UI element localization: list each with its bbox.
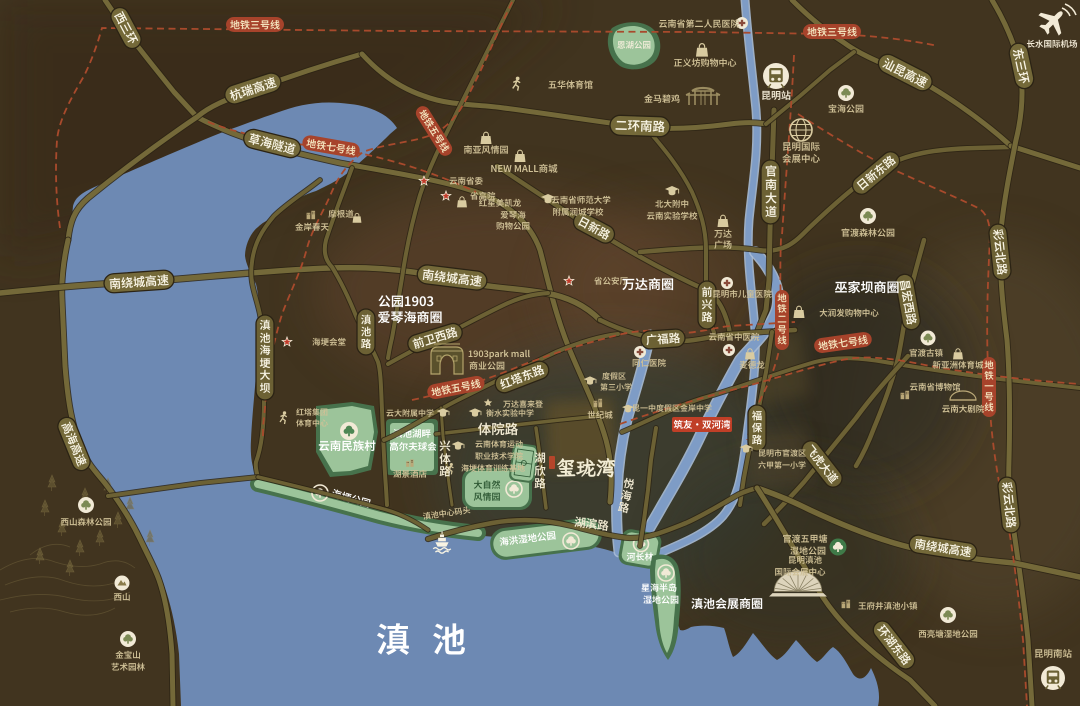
svg-text:第三小学: 第三小学 bbox=[600, 382, 632, 393]
svg-text:北大附中: 北大附中 bbox=[655, 198, 689, 210]
svg-text:二环南路: 二环南路 bbox=[615, 115, 666, 136]
svg-text:会展中心: 会展中心 bbox=[782, 151, 821, 165]
svg-text:长水国际机场: 长水国际机场 bbox=[1026, 38, 1078, 50]
svg-text:风情园: 风情园 bbox=[473, 490, 500, 503]
svg-text:滇池会展商圈: 滇池会展商圈 bbox=[691, 595, 763, 612]
svg-text:广福路: 广福路 bbox=[645, 330, 681, 348]
svg-text:玺珑湾: 玺珑湾 bbox=[556, 454, 616, 481]
svg-text:云南实验学校: 云南实验学校 bbox=[646, 210, 698, 222]
svg-text:云南省师范大学: 云南省师范大学 bbox=[551, 194, 611, 206]
svg-text:职业技术学院: 职业技术学院 bbox=[475, 451, 523, 462]
svg-text:海埂会堂: 海埂会堂 bbox=[312, 336, 347, 348]
svg-text:云大附属中学: 云大附属中学 bbox=[386, 408, 434, 419]
svg-text:体育中心: 体育中心 bbox=[296, 418, 328, 429]
svg-text:云南省委: 云南省委 bbox=[449, 175, 484, 187]
svg-text:西山森林公园: 西山森林公园 bbox=[60, 516, 111, 528]
svg-text:湿地公园: 湿地公园 bbox=[643, 593, 679, 606]
svg-text:国际会展中心: 国际会展中心 bbox=[774, 566, 826, 578]
svg-text:云南民族村: 云南民族村 bbox=[318, 438, 376, 454]
svg-text:昆一中度假区金岸中学: 昆一中度假区金岸中学 bbox=[632, 403, 712, 414]
svg-text:高尔夫球会: 高尔夫球会 bbox=[389, 439, 437, 453]
svg-text:西亮塘湿地公园: 西亮塘湿地公园 bbox=[918, 628, 978, 640]
svg-text:云南省中医院: 云南省中医院 bbox=[708, 331, 760, 343]
svg-text:线: 线 bbox=[984, 399, 994, 413]
svg-text:爱琴海商圈: 爱琴海商圈 bbox=[377, 307, 442, 326]
svg-text:筑友·双河湾: 筑友·双河湾 bbox=[673, 417, 731, 431]
svg-text:地铁三号线: 地铁三号线 bbox=[807, 24, 857, 39]
svg-text:金宝山: 金宝山 bbox=[115, 649, 141, 661]
svg-text:南亚风情园: 南亚风情园 bbox=[463, 143, 508, 156]
svg-text:线: 线 bbox=[777, 332, 787, 346]
svg-text:昆明市官渡区: 昆明市官渡区 bbox=[758, 448, 806, 459]
svg-text:昆明南站: 昆明南站 bbox=[1034, 646, 1073, 660]
svg-text:路: 路 bbox=[752, 432, 763, 447]
svg-text:六甲第一小学: 六甲第一小学 bbox=[758, 460, 806, 471]
svg-text:正义坊购物中心: 正义坊购物中心 bbox=[673, 56, 736, 69]
svg-text:海埂体育训练基地: 海埂体育训练基地 bbox=[461, 463, 525, 474]
svg-text:河长林: 河长林 bbox=[626, 550, 653, 563]
svg-text:路: 路 bbox=[534, 476, 546, 492]
svg-text:麦德龙: 麦德龙 bbox=[739, 359, 765, 371]
svg-text:世纪城: 世纪城 bbox=[587, 409, 613, 421]
svg-text:商业公园: 商业公园 bbox=[469, 359, 505, 372]
svg-text:云南体育运动: 云南体育运动 bbox=[475, 439, 523, 450]
svg-text:昆明站: 昆明站 bbox=[761, 87, 791, 102]
svg-text:巫家坝商圈: 巫家坝商圈 bbox=[834, 277, 899, 296]
svg-text:新亚洲体育城: 新亚洲体育城 bbox=[932, 359, 984, 371]
svg-text:路: 路 bbox=[439, 464, 451, 480]
svg-text:红星美凯龙: 红星美凯龙 bbox=[479, 197, 522, 209]
svg-text:王府井滇池小镇: 王府井滇池小镇 bbox=[858, 600, 918, 612]
svg-text:地铁三号线: 地铁三号线 bbox=[230, 17, 280, 32]
svg-text:金岸春天: 金岸春天 bbox=[295, 221, 330, 233]
svg-text:昆明市儿童医院: 昆明市儿童医院 bbox=[712, 288, 772, 300]
svg-text:云南省博物馆: 云南省博物馆 bbox=[909, 381, 961, 393]
svg-text:同仁医院: 同仁医院 bbox=[632, 357, 667, 369]
svg-text:红塔集团: 红塔集团 bbox=[296, 407, 328, 418]
svg-text:官渡古镇: 官渡古镇 bbox=[909, 347, 944, 359]
svg-text:宝海公园: 宝海公园 bbox=[828, 102, 864, 115]
svg-text:道: 道 bbox=[765, 203, 777, 220]
svg-text:NEW MALL商城: NEW MALL商城 bbox=[490, 161, 558, 175]
svg-text:万达商圈: 万达商圈 bbox=[622, 274, 674, 293]
svg-text:滇池: 滇池 bbox=[376, 613, 488, 662]
svg-text:官渡森林公园: 官渡森林公园 bbox=[841, 226, 895, 239]
svg-text:西山: 西山 bbox=[113, 591, 130, 603]
svg-text:金马碧鸡: 金马碧鸡 bbox=[644, 92, 680, 105]
svg-text:衡水实验中学: 衡水实验中学 bbox=[486, 408, 534, 419]
svg-text:艺术园林: 艺术园林 bbox=[111, 661, 146, 673]
svg-text:云南省第二人民医院: 云南省第二人民医院 bbox=[658, 17, 739, 30]
svg-text:云南大剧院: 云南大剧院 bbox=[942, 403, 985, 415]
svg-text:昆明滇池: 昆明滇池 bbox=[788, 554, 823, 566]
svg-text:坝: 坝 bbox=[260, 380, 271, 396]
svg-text:大润发购物中心: 大润发购物中心 bbox=[819, 307, 879, 319]
svg-text:恩湖公园: 恩湖公园 bbox=[617, 39, 651, 51]
svg-text:路: 路 bbox=[361, 336, 372, 351]
svg-text:五华体育馆: 五华体育馆 bbox=[548, 78, 593, 91]
svg-text:体院路: 体院路 bbox=[478, 418, 519, 438]
svg-text:度假区: 度假区 bbox=[602, 371, 626, 382]
svg-text:广场: 广场 bbox=[714, 238, 732, 251]
svg-text:附属润城学校: 附属润城学校 bbox=[552, 206, 604, 218]
svg-text:湖景酒店: 湖景酒店 bbox=[393, 468, 428, 480]
svg-text:购物公园: 购物公园 bbox=[496, 220, 530, 232]
svg-text:路: 路 bbox=[702, 309, 713, 325]
svg-text:摩根道: 摩根道 bbox=[328, 208, 354, 220]
